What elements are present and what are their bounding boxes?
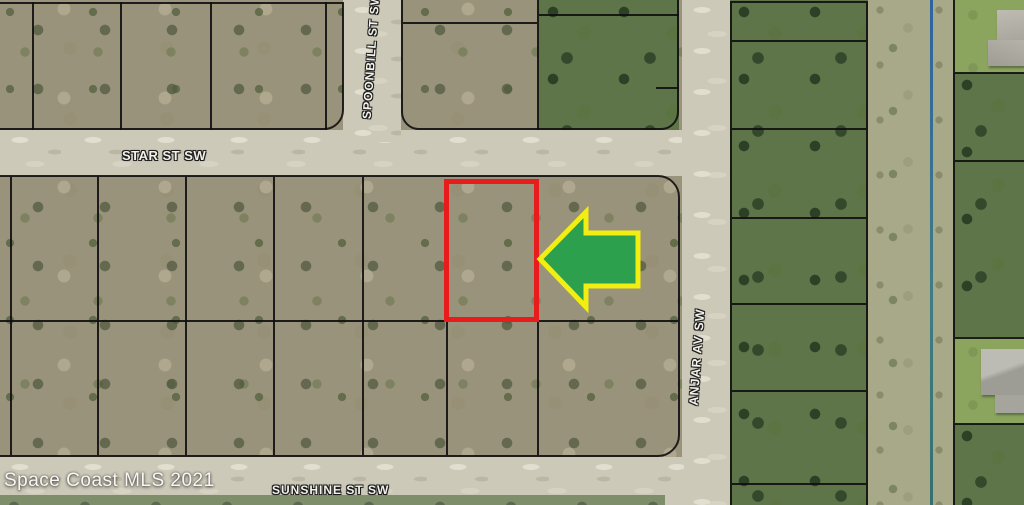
parcel-line (120, 2, 122, 130)
roof-section (981, 349, 1024, 395)
parcel-line (732, 40, 866, 42)
parcel-line (953, 0, 955, 505)
parcel-line (732, 303, 866, 305)
parcel-line (732, 390, 866, 392)
parcel-line (32, 2, 34, 130)
pointer-arrow-shape (540, 212, 638, 307)
wooded-parcel (953, 424, 1024, 505)
pointer-arrow (532, 204, 644, 314)
parcel-line (403, 22, 537, 24)
street-label-star: STAR ST SW (122, 148, 206, 163)
parcel-line (210, 2, 212, 130)
parcel-line (732, 217, 866, 219)
watermark: Space Coast MLS 2021 (4, 470, 215, 492)
subject-parcel-outline (444, 179, 539, 322)
house-roof (988, 10, 1024, 66)
parcel-line (955, 337, 1024, 339)
parcel-line (732, 128, 866, 130)
roof-section (988, 40, 1024, 66)
parcel-line (537, 320, 539, 455)
parcel-line (362, 177, 364, 455)
canal-line (930, 0, 933, 505)
parcel-line (0, 320, 678, 322)
parcel-line (97, 177, 99, 455)
aerial-map-image: STAR ST SW SPOONBILL ST SW ANJAR AV SW S… (0, 0, 1024, 505)
house-roof (981, 348, 1024, 414)
parcel-line (732, 483, 866, 485)
roof-section (995, 395, 1024, 413)
block-outline (730, 1, 868, 505)
parcel-line (325, 2, 327, 130)
parcel-line (955, 72, 1024, 74)
parcel-line (10, 177, 12, 455)
road-anjar-av (682, 0, 730, 505)
parcel-line (955, 160, 1024, 162)
street-label-sunshine: SUNSHINE ST SW (272, 483, 389, 497)
roof-section (997, 10, 1024, 40)
road-star-st (0, 130, 684, 176)
parcel-line (537, 0, 539, 130)
block-outline (401, 0, 679, 130)
block-outline (0, 2, 344, 130)
parcel-line (446, 320, 448, 455)
wooded-parcel (953, 73, 1024, 337)
canal-easement-strip (868, 0, 953, 505)
parcel-line (656, 87, 679, 89)
parcel-line (185, 177, 187, 455)
parcel-line (273, 177, 275, 455)
parcel-line (539, 14, 679, 16)
parcel-line (955, 423, 1024, 425)
